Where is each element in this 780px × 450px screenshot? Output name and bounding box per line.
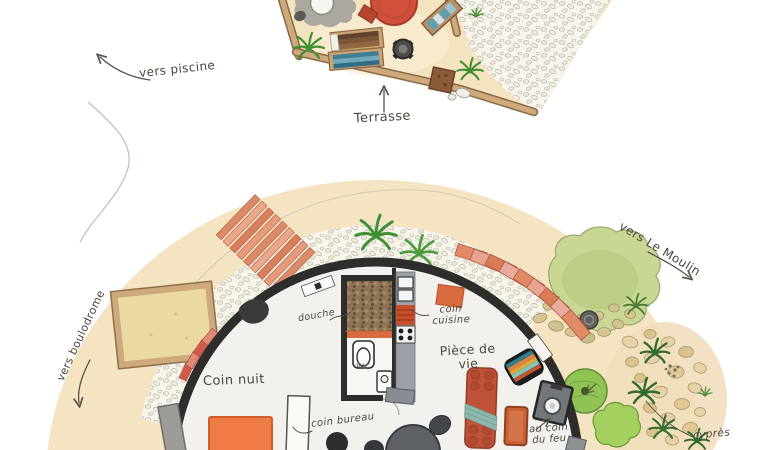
lounger-blue — [328, 48, 383, 71]
bed — [209, 417, 272, 450]
terrace-crate — [429, 67, 455, 93]
terrace — [281, 0, 615, 112]
terrace-bbq — [392, 40, 413, 60]
desk — [286, 396, 310, 450]
stone — [448, 94, 456, 100]
kitchen-stove — [396, 326, 415, 343]
plan-artwork — [0, 0, 780, 450]
sofa — [464, 367, 499, 448]
kitchen-sink — [398, 290, 413, 301]
shower-floor — [346, 280, 392, 332]
kitchen-sink — [398, 277, 413, 288]
wood-stove — [533, 381, 573, 425]
label-coin-nuit: Coin nuit — [203, 373, 265, 390]
site-plan-illustration: vers piscine Terrasse vers Le Moulin ver… — [0, 0, 780, 450]
label-piece-de-vie: Pièce de vie — [437, 341, 498, 372]
kitchen-counter-end — [385, 388, 414, 405]
label-terrasse: Terrasse — [354, 110, 412, 128]
label-coin-cuisine: coin cuisine — [425, 303, 476, 328]
label-au-coin-du-feu: au coin du feu — [523, 421, 574, 447]
label-wc: wc — [356, 361, 370, 372]
wc-wall-band — [346, 331, 392, 339]
